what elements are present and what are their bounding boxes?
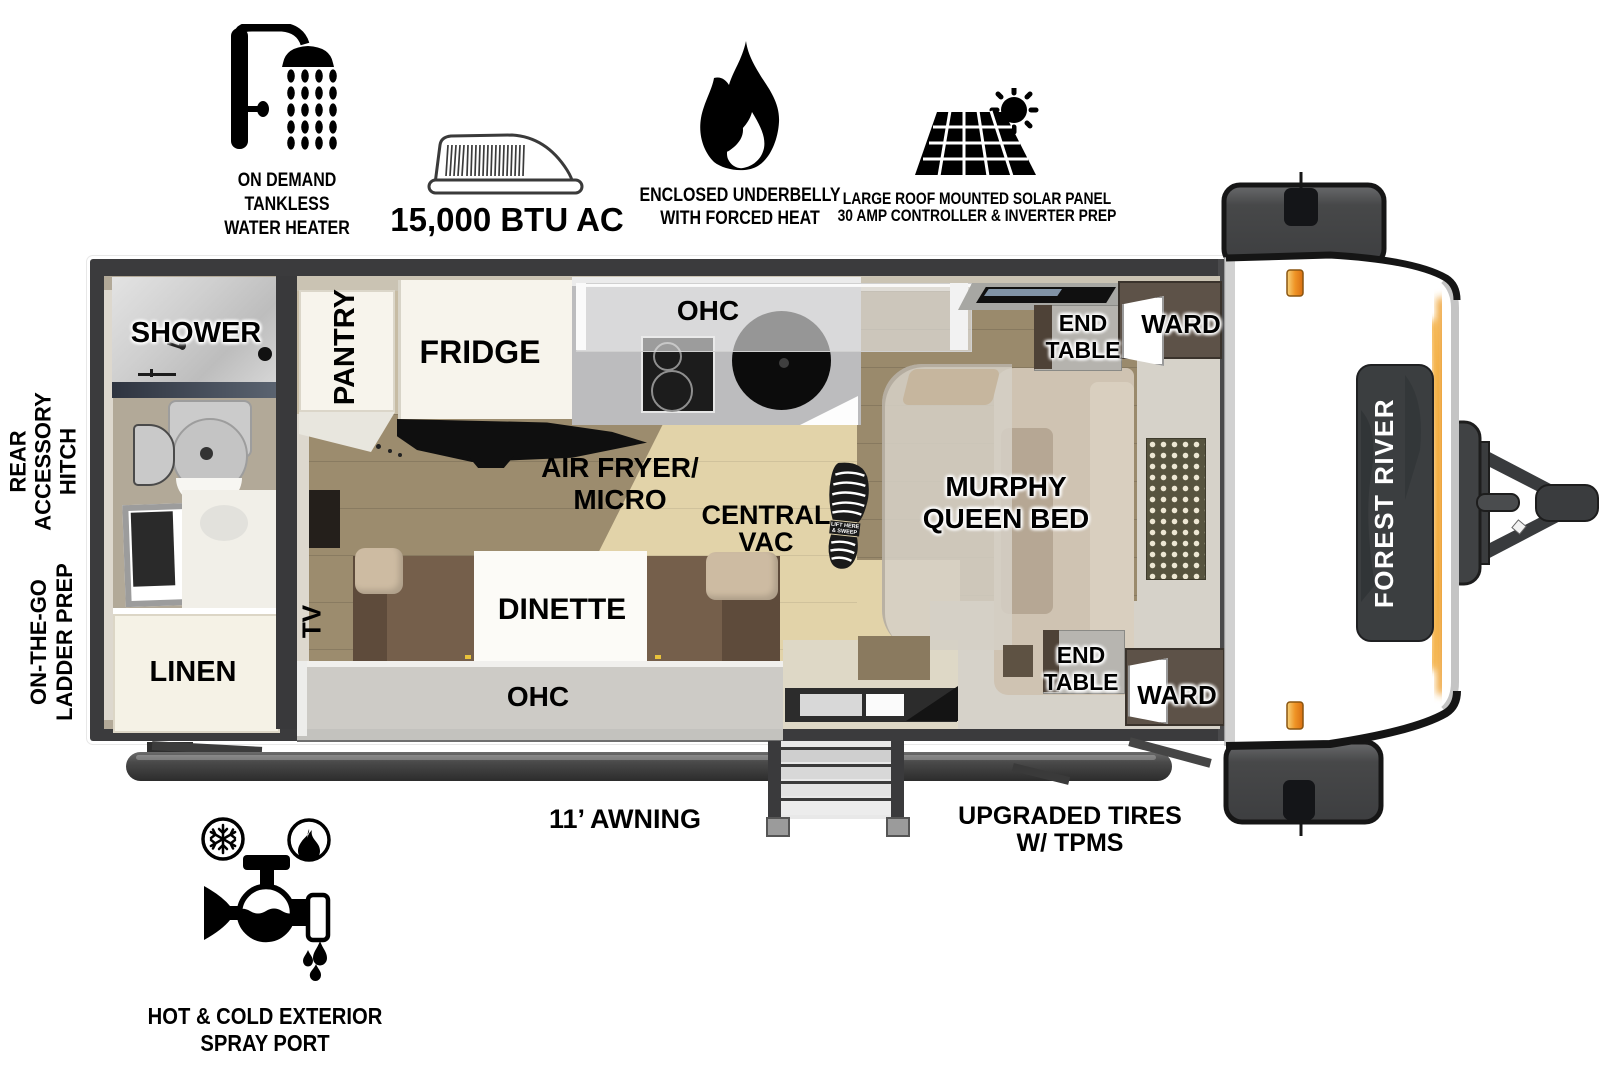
svg-text:FOREST RIVER: FOREST RIVER — [1369, 398, 1399, 608]
